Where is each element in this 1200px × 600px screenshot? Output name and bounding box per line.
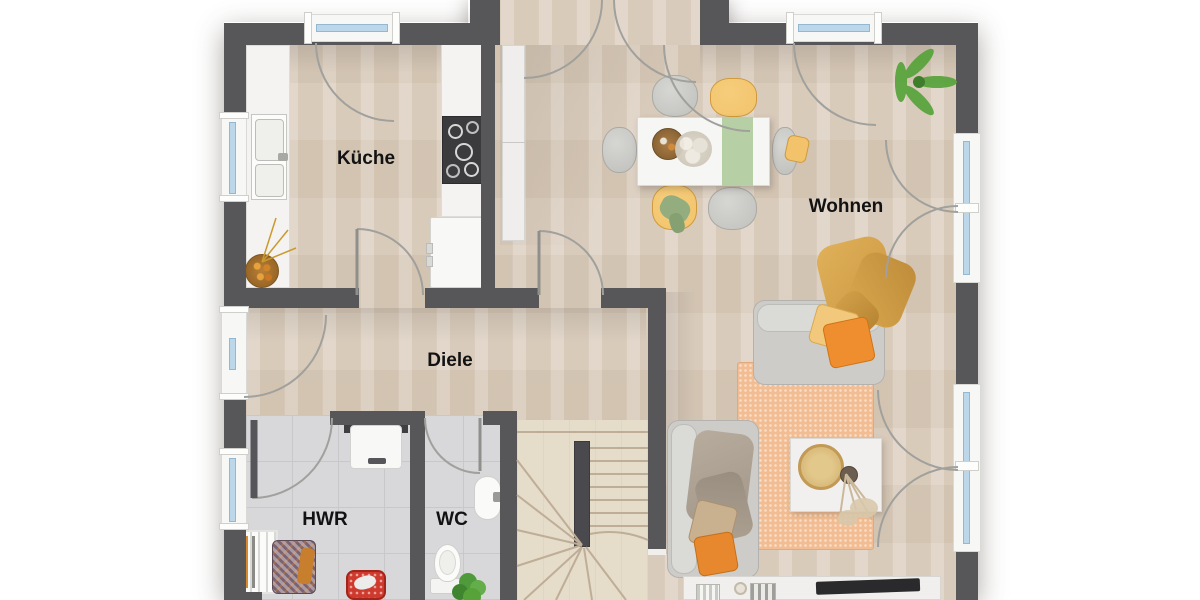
window-cap [392, 12, 400, 44]
window-cap [786, 12, 794, 44]
window-cap [219, 112, 249, 119]
table-runner [722, 117, 753, 186]
front-door-cap [219, 393, 249, 400]
refrigerator-handle [426, 256, 433, 267]
water-heater-vent [368, 458, 386, 464]
stove-burner [466, 121, 479, 134]
floor-plan: Küche Wohnen Diele HWR WC [0, 0, 1200, 600]
wall-entry-column-left [470, 0, 500, 45]
cushion-orange [822, 316, 876, 370]
books [750, 583, 776, 600]
window-glass [229, 122, 236, 194]
wall-kitchen-entry [481, 43, 495, 290]
window-cap [219, 448, 249, 455]
fruit-bowl [245, 254, 279, 288]
window-glass [229, 458, 236, 522]
stove-burner [446, 164, 460, 178]
dining-chair [602, 127, 637, 173]
window-cap [219, 523, 249, 530]
centerpiece-flowers [675, 131, 712, 167]
window-glass [316, 24, 388, 32]
candle [734, 582, 747, 595]
window-sill-bottom [238, 592, 262, 600]
window-cap [874, 12, 882, 44]
room-label-kueche: Küche [337, 148, 395, 170]
stair-newel [574, 441, 590, 547]
refrigerator-handle [426, 243, 433, 254]
stove-burner [455, 143, 473, 161]
hall-cabinet [502, 45, 525, 241]
wall-mid-kitchen [224, 288, 359, 308]
toilet-seat [439, 550, 456, 575]
sink-basin [255, 164, 284, 197]
refrigerator [430, 217, 487, 288]
wall-living-west [648, 288, 666, 555]
door-handle [955, 461, 979, 471]
dining-chair [708, 187, 757, 230]
window-cap [304, 12, 312, 44]
hanging-cloth [252, 536, 255, 588]
wall-hwr-top [330, 411, 412, 425]
stove-burner [464, 162, 479, 177]
wall-wc-stairs [500, 411, 517, 600]
room-label-hwr: HWR [302, 509, 347, 531]
decor-tray [798, 444, 844, 490]
front-door-glass [229, 338, 236, 370]
room-label-wc: WC [436, 509, 468, 531]
door-handle [955, 203, 979, 213]
wall-end-cap [648, 549, 666, 555]
room-label-diele: Diele [427, 350, 472, 372]
cushion-orange [693, 531, 739, 577]
front-door-cap [219, 306, 249, 313]
wall-hwr-wc-divider [410, 411, 425, 600]
stove-burner [448, 124, 463, 139]
dining-chair [710, 78, 757, 117]
books [696, 584, 720, 600]
window-cap [219, 195, 249, 202]
hall-cabinet-seam [502, 142, 525, 143]
floor-wood-entry [500, 0, 700, 45]
sink-faucet-icon [278, 153, 288, 161]
vase [840, 466, 858, 484]
dining-chair [652, 75, 698, 117]
wall-mid-center [425, 288, 539, 308]
window-glass [798, 24, 870, 32]
room-label-wohnen: Wohnen [809, 196, 884, 218]
